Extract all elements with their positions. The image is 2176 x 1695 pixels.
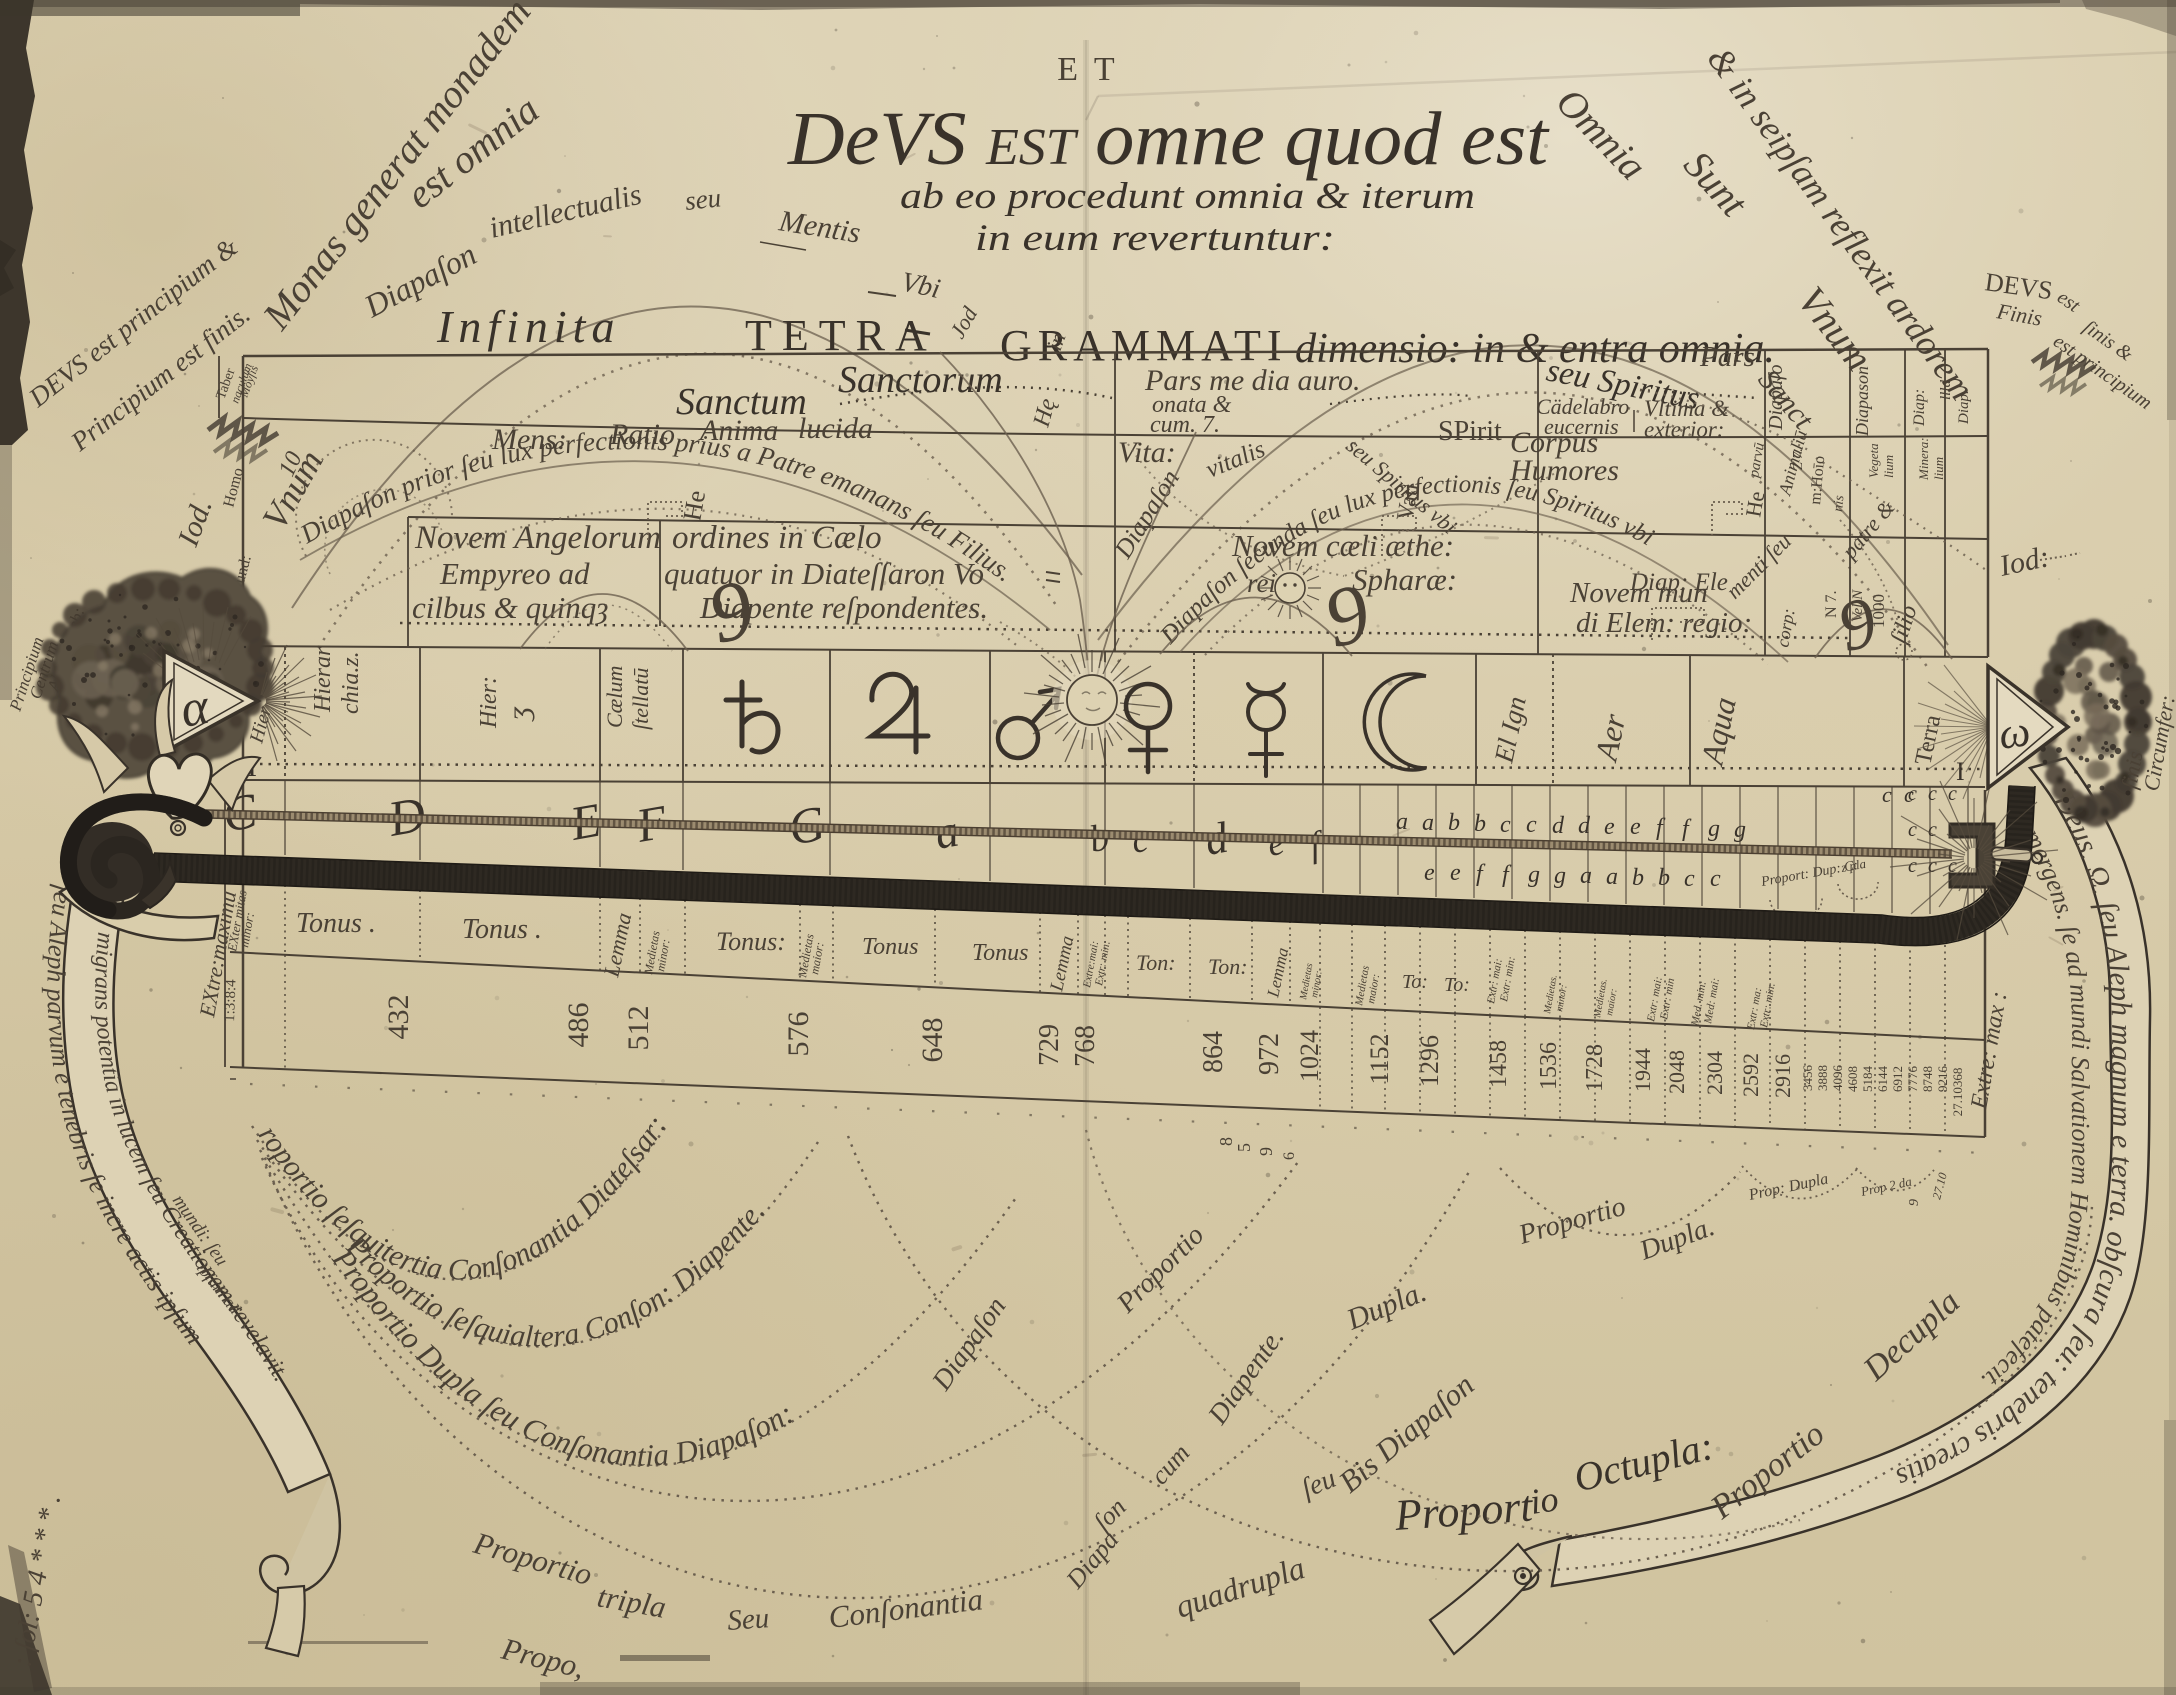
svg-text:Tonus: Tonus bbox=[862, 934, 918, 960]
svg-text:di Elem: regio:: di Elem: regio: bbox=[1576, 607, 1752, 639]
svg-text:lucida: lucida bbox=[798, 412, 873, 445]
svg-text:Diap: Ele: Diap: Ele bbox=[1629, 569, 1728, 596]
svg-text:DeVS EST omne quod est: DeVS EST omne quod est bbox=[787, 97, 1550, 181]
svg-text:d: d bbox=[1578, 813, 1591, 839]
svg-text:1728: 1728 bbox=[1582, 1044, 1608, 1092]
svg-text:4096: 4096 bbox=[1830, 1065, 1845, 1092]
svg-text:1024: 1024 bbox=[1295, 1030, 1324, 1082]
svg-text:Vegeta: Vegeta bbox=[1866, 443, 1881, 478]
svg-text:a: a bbox=[1396, 809, 1408, 835]
svg-text:g: g bbox=[1708, 816, 1720, 842]
svg-text:6: 6 bbox=[1281, 1152, 1298, 1160]
svg-text:2048: 2048 bbox=[1664, 1050, 1689, 1094]
svg-text:27.10368: 27.10368 bbox=[1950, 1068, 1965, 1117]
svg-text:He: He bbox=[1740, 489, 1769, 519]
svg-text:1000: 1000 bbox=[1869, 594, 1888, 628]
svg-text:nis: nis bbox=[1831, 494, 1847, 512]
svg-text:g: g bbox=[1528, 862, 1540, 888]
svg-text:c: c bbox=[1928, 783, 1937, 805]
svg-text:Minera:: Minera: bbox=[1916, 437, 1931, 481]
svg-text:3456: 3456 bbox=[1800, 1065, 1815, 1092]
svg-text:ordines in Cælo: ordines in Cælo bbox=[672, 520, 882, 556]
svg-text:To:: To: bbox=[1444, 974, 1470, 996]
svg-text:e: e bbox=[1604, 814, 1615, 840]
svg-text:Tonus .: Tonus . bbox=[462, 914, 542, 945]
svg-text:1458: 1458 bbox=[1486, 1040, 1512, 1088]
svg-text:432: 432 bbox=[382, 995, 415, 1040]
svg-text:e: e bbox=[1630, 814, 1641, 840]
svg-text:Spharæ:: Spharæ: bbox=[1352, 562, 1457, 597]
svg-text:1944: 1944 bbox=[1630, 1048, 1655, 1092]
svg-text:Hier:: Hier: bbox=[476, 676, 502, 729]
svg-text:c: c bbox=[1908, 855, 1917, 877]
svg-text:Z 7.: Z 7. bbox=[1791, 448, 1806, 470]
svg-text:9216: 9216 bbox=[1935, 1066, 1950, 1093]
svg-text:SPirit: SPirit bbox=[1438, 416, 1502, 447]
svg-text:Tonus:: Tonus: bbox=[716, 927, 786, 956]
svg-text:N 7.: N 7. bbox=[1823, 590, 1840, 618]
svg-text:b: b bbox=[1632, 865, 1644, 891]
svg-text:Humores: Humores bbox=[1509, 454, 1619, 487]
svg-text:Diap.: Diap. bbox=[1956, 390, 1972, 425]
svg-text:c: c bbox=[1908, 783, 1917, 805]
svg-text:Seu: Seu bbox=[726, 1602, 770, 1637]
svg-text:c: c bbox=[1684, 866, 1695, 892]
svg-text:in eum revertuntur:: in eum revertuntur: bbox=[975, 218, 1335, 259]
svg-text:9: 9 bbox=[1256, 1147, 1276, 1156]
svg-text:Cælum: Cælum bbox=[602, 666, 627, 728]
svg-text:Pars: Pars bbox=[1699, 341, 1755, 373]
svg-text:5: 5 bbox=[1234, 1143, 1254, 1152]
svg-text:Vita:: Vita: bbox=[1118, 436, 1176, 469]
svg-text:Tonus: Tonus bbox=[972, 940, 1028, 966]
svg-text:8748: 8748 bbox=[1920, 1066, 1935, 1092]
svg-text:c: c bbox=[1526, 812, 1537, 838]
svg-text:lium: lium bbox=[1931, 457, 1946, 480]
svg-text:1296: 1296 bbox=[1415, 1035, 1444, 1087]
svg-text:512: 512 bbox=[622, 1006, 655, 1051]
svg-text:ʒ: ʒ bbox=[502, 706, 535, 722]
svg-text:io: io bbox=[1528, 1478, 1561, 1522]
svg-text:Empyreo ad: Empyreo ad bbox=[439, 556, 590, 591]
svg-text:Tonus .: Tonus . bbox=[296, 908, 376, 939]
svg-text:Vel N: Vel N bbox=[1850, 589, 1866, 622]
svg-text:2304: 2304 bbox=[1702, 1051, 1727, 1095]
svg-text:729: 729 bbox=[1034, 1024, 1065, 1066]
svg-text:Diapason: Diapason bbox=[1852, 366, 1872, 437]
svg-text:e: e bbox=[1450, 860, 1461, 886]
svg-text:a: a bbox=[1606, 864, 1618, 890]
svg-text:768: 768 bbox=[1070, 1025, 1101, 1067]
svg-text:Anima: Anima bbox=[698, 414, 778, 447]
svg-text:2592: 2592 bbox=[1738, 1053, 1763, 1097]
svg-text:d: d bbox=[1552, 813, 1565, 839]
svg-text:e: e bbox=[1424, 860, 1435, 886]
svg-text:llld: llld bbox=[1938, 379, 1954, 400]
svg-text:2916: 2916 bbox=[1770, 1054, 1795, 1098]
svg-text:a: a bbox=[1422, 810, 1434, 836]
svg-text:b: b bbox=[1474, 811, 1486, 837]
svg-text:c: c bbox=[1710, 866, 1721, 892]
svg-text:cilbus & quinqȝ: cilbus & quinqȝ bbox=[412, 590, 608, 626]
svg-text:Diap:: Diap: bbox=[1911, 389, 1928, 427]
svg-text:1:3:8:4: 1:3:8:4 bbox=[222, 979, 239, 1023]
svg-text:lium: lium bbox=[1881, 455, 1896, 478]
svg-text:exterior:: exterior: bbox=[1644, 417, 1724, 442]
svg-text:Ton:: Ton: bbox=[1136, 950, 1176, 975]
svg-text:Diapaſo: Diapaſo bbox=[1765, 364, 1787, 431]
svg-text:b: b bbox=[1448, 810, 1460, 836]
svg-text:5184: 5184 bbox=[1860, 1066, 1875, 1093]
svg-text:7776: 7776 bbox=[1905, 1066, 1920, 1093]
svg-text:a: a bbox=[1580, 863, 1592, 889]
svg-text:b: b bbox=[1658, 865, 1670, 891]
svg-text:Ratio: Ratio bbox=[609, 418, 675, 451]
svg-text:c: c bbox=[1928, 819, 1937, 841]
svg-text:Infinita: Infinita bbox=[436, 301, 620, 352]
svg-text:4608: 4608 bbox=[1845, 1066, 1860, 1092]
svg-text:rei: rei bbox=[1247, 568, 1276, 598]
svg-text:I: I bbox=[1956, 757, 1965, 786]
svg-text:E T: E T bbox=[1057, 51, 1118, 88]
svg-text:Hierar: Hierar bbox=[310, 646, 336, 713]
svg-text:8: 8 bbox=[1216, 1137, 1236, 1146]
svg-text:Proport: Proport bbox=[1392, 1481, 1536, 1540]
svg-text:6144: 6144 bbox=[1875, 1066, 1890, 1093]
svg-text:6912: 6912 bbox=[1890, 1066, 1905, 1092]
svg-text:864: 864 bbox=[1198, 1031, 1229, 1073]
svg-text:972: 972 bbox=[1254, 1033, 1285, 1075]
svg-text:To:: To: bbox=[1402, 971, 1428, 993]
svg-text:c: c bbox=[1500, 812, 1511, 838]
svg-text:g: g bbox=[1734, 817, 1746, 843]
svg-text:ſtellatū: ſtellatū bbox=[628, 668, 653, 730]
svg-text:3888: 3888 bbox=[1815, 1065, 1830, 1091]
svg-text:seu: seu bbox=[683, 182, 722, 216]
svg-text:Novem cæli æthe:: Novem cæli æthe: bbox=[1231, 528, 1454, 563]
svg-text:Mens:: Mens: bbox=[491, 423, 567, 456]
svg-text:chia.z.: chia.z. bbox=[338, 651, 364, 714]
svg-text:1536: 1536 bbox=[1536, 1042, 1562, 1090]
svg-text:cum. 7.: cum. 7. bbox=[1150, 412, 1220, 438]
svg-text:576: 576 bbox=[782, 1012, 815, 1057]
svg-text:648: 648 bbox=[916, 1018, 949, 1063]
svg-text:Novem Angelorum: Novem Angelorum bbox=[414, 520, 661, 556]
svg-text:1152: 1152 bbox=[1365, 1033, 1394, 1084]
svg-text:Ton:: Ton: bbox=[1208, 954, 1248, 979]
svg-text:ab eo procedunt omnia & iterum: ab eo procedunt omnia & iterum bbox=[900, 176, 1475, 217]
svg-text:486: 486 bbox=[562, 1003, 595, 1048]
svg-text:c: c bbox=[1882, 782, 1892, 807]
svg-text:9: 9 bbox=[1907, 1199, 1922, 1206]
svg-text:g: g bbox=[1554, 863, 1566, 889]
